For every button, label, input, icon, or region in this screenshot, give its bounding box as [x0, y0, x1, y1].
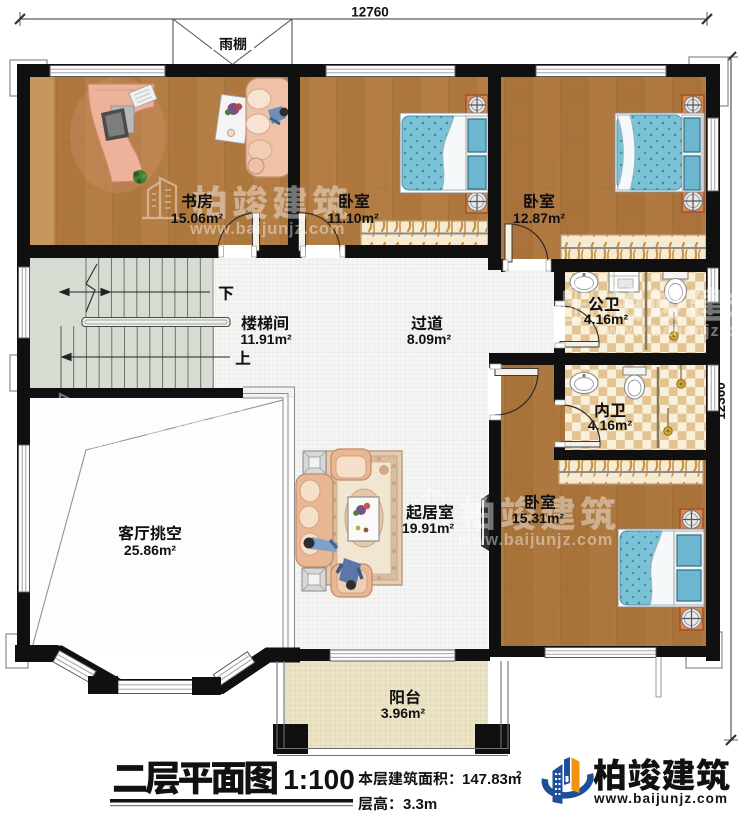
svg-text:12760: 12760 — [351, 5, 389, 20]
svg-text:11.10m²: 11.10m² — [327, 210, 379, 226]
svg-text:15.06m²: 15.06m² — [171, 210, 223, 226]
svg-text:3.3m: 3.3m — [403, 796, 437, 813]
svg-text:19.91m²: 19.91m² — [402, 520, 454, 536]
svg-text:3.96m²: 3.96m² — [381, 705, 426, 721]
svg-text:www.baijunjz.com: www.baijunjz.com — [457, 531, 613, 549]
svg-text:1:100: 1:100 — [283, 764, 355, 795]
svg-text:15.31m²: 15.31m² — [512, 510, 564, 526]
svg-text:www.baijunjz.com: www.baijunjz.com — [593, 791, 728, 806]
svg-text:4.16m²: 4.16m² — [584, 311, 629, 327]
svg-text:147.83m: 147.83m — [462, 771, 521, 788]
svg-text:11.91m²: 11.91m² — [240, 331, 292, 347]
svg-text:4.16m²: 4.16m² — [588, 417, 633, 433]
svg-text:12.87m²: 12.87m² — [513, 210, 565, 226]
svg-text:2: 2 — [516, 770, 522, 781]
svg-text:25.86m²: 25.86m² — [124, 542, 176, 558]
svg-text:www.baijunjz.com: www.baijunjz.com — [89, 436, 245, 454]
svg-text:8.09m²: 8.09m² — [407, 331, 452, 347]
